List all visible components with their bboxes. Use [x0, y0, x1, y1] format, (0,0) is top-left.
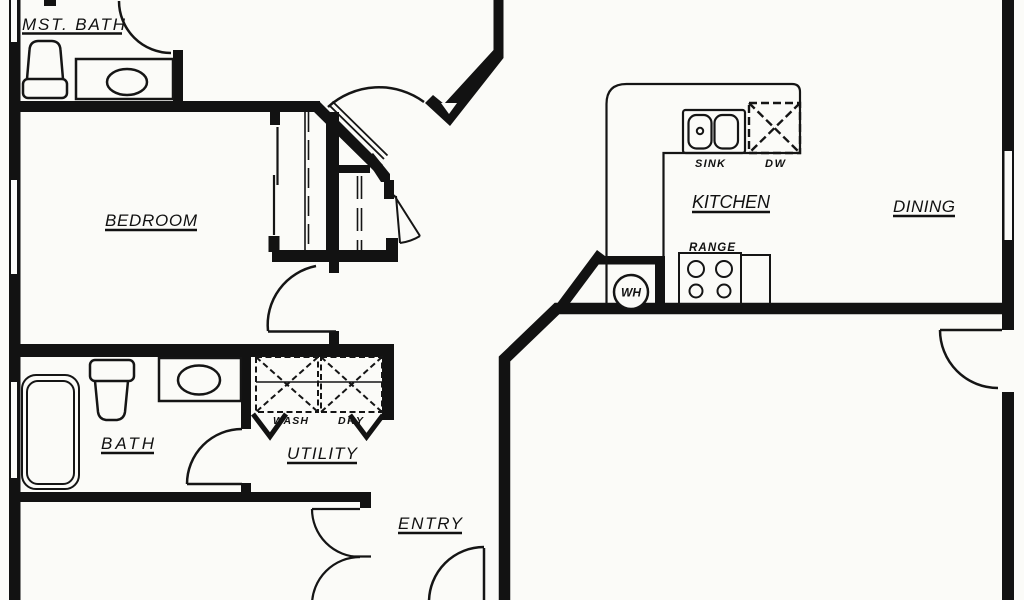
svg-text:SINK: SINK — [695, 158, 726, 170]
svg-text:DW: DW — [765, 158, 787, 170]
svg-text:BEDROOM: BEDROOM — [105, 211, 198, 230]
svg-text:WH: WH — [621, 286, 641, 300]
svg-text:WASH: WASH — [273, 415, 308, 427]
svg-text:ENTRY: ENTRY — [398, 514, 464, 533]
svg-text:BATH: BATH — [101, 434, 155, 453]
svg-text:RANGE: RANGE — [689, 242, 735, 254]
svg-text:DRY: DRY — [338, 415, 364, 427]
svg-text:DINING: DINING — [893, 197, 955, 216]
svg-text:UTILITY: UTILITY — [287, 444, 359, 463]
svg-text:KITCHEN: KITCHEN — [692, 192, 771, 212]
